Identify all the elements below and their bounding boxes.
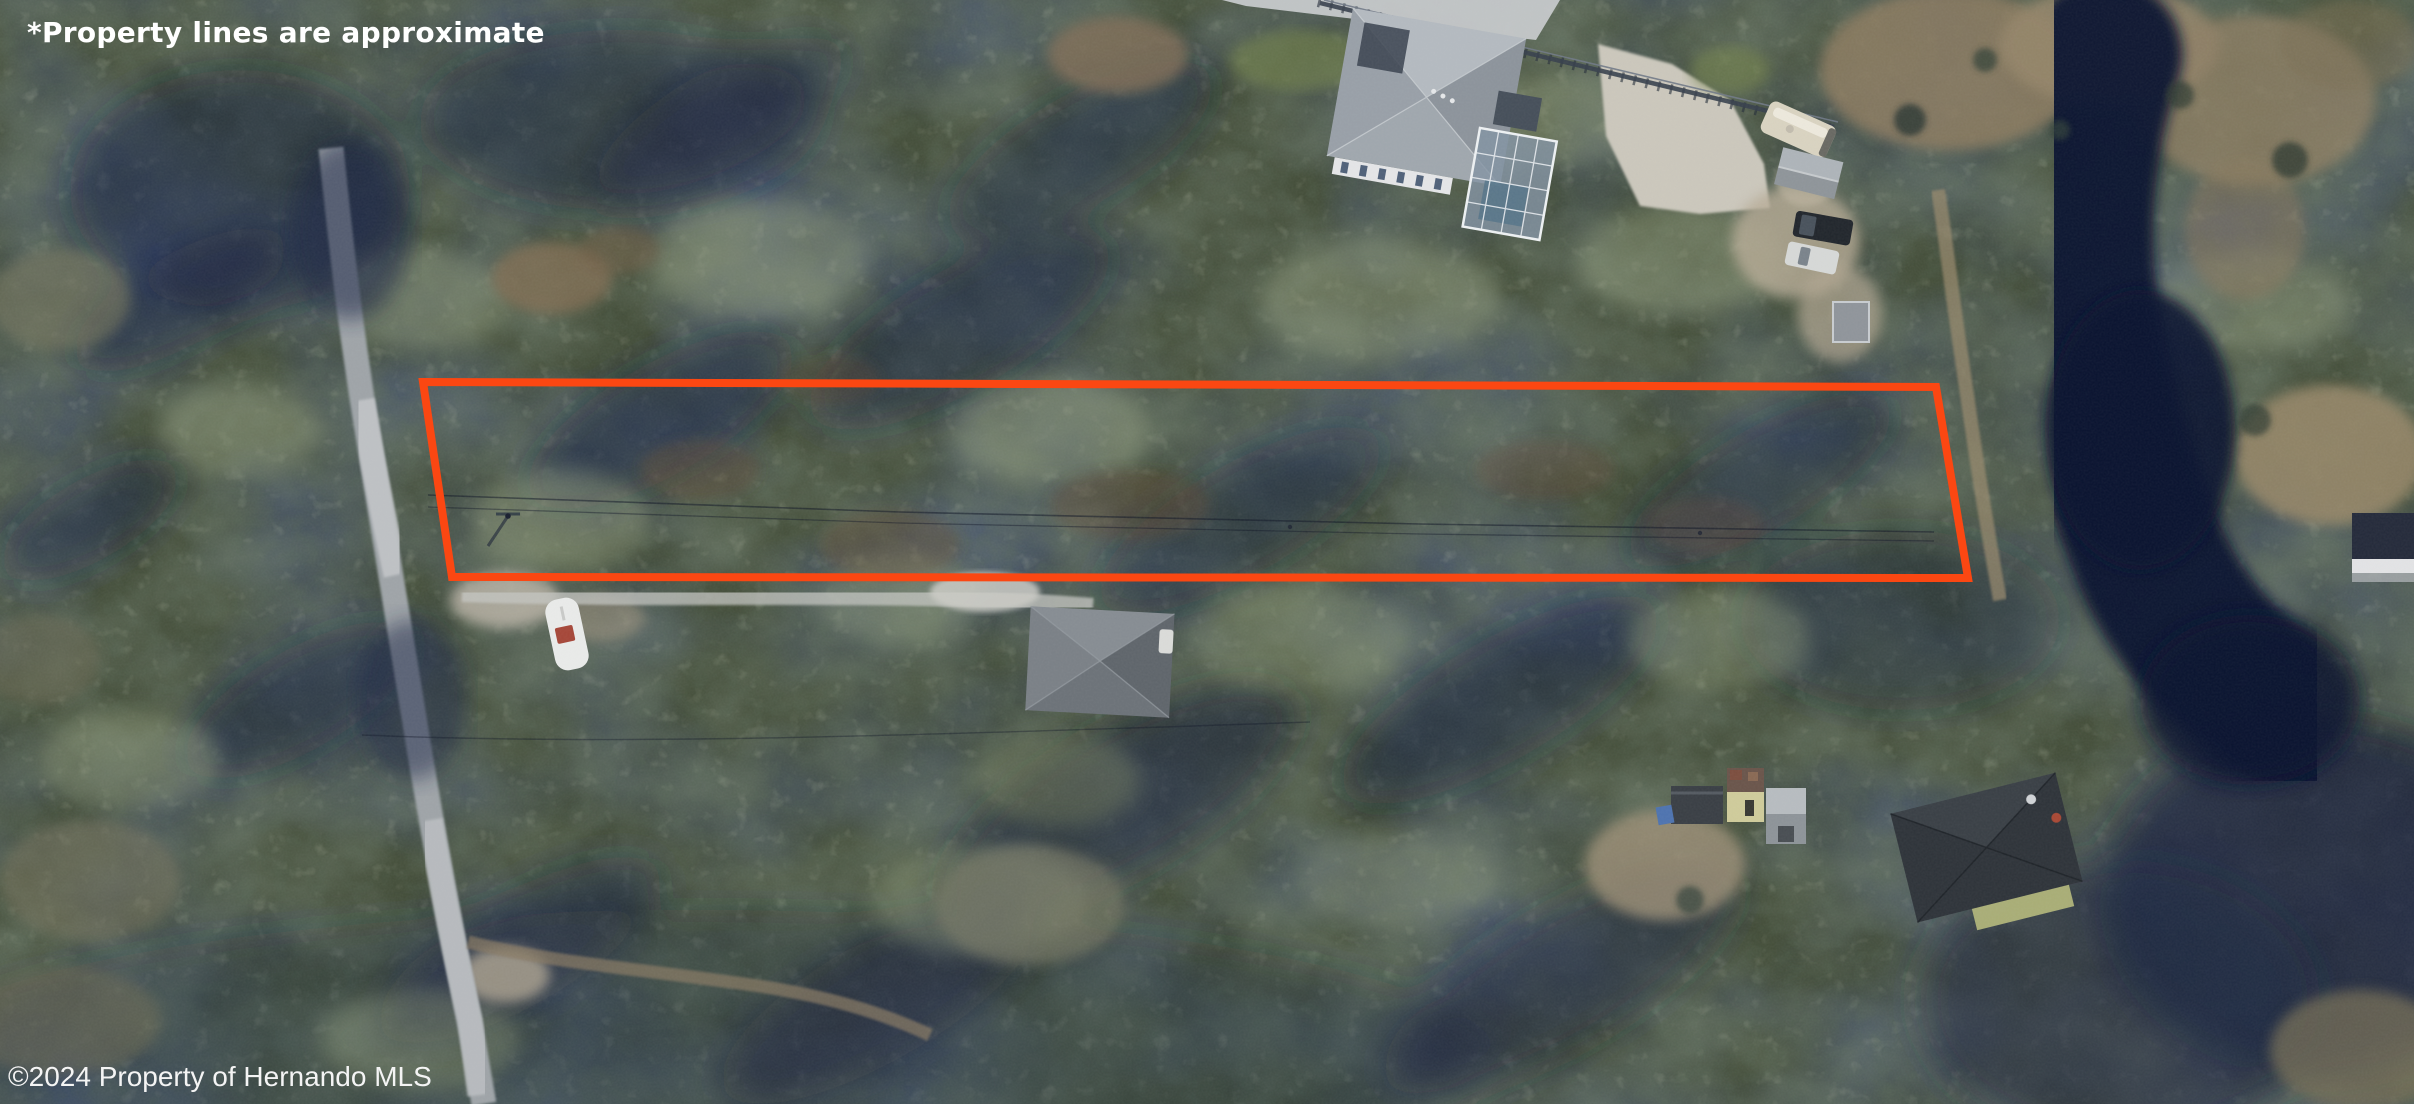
copyright-text: ©2024 Property of Hernando MLS: [8, 1061, 432, 1093]
photo-grain: [0, 0, 2414, 1104]
disclaimer-text: *Property lines are approximate: [27, 16, 545, 49]
aerial-scene: [0, 0, 2414, 1104]
aerial-photo: *Property lines are approximate ©2024 Pr…: [0, 0, 2414, 1104]
